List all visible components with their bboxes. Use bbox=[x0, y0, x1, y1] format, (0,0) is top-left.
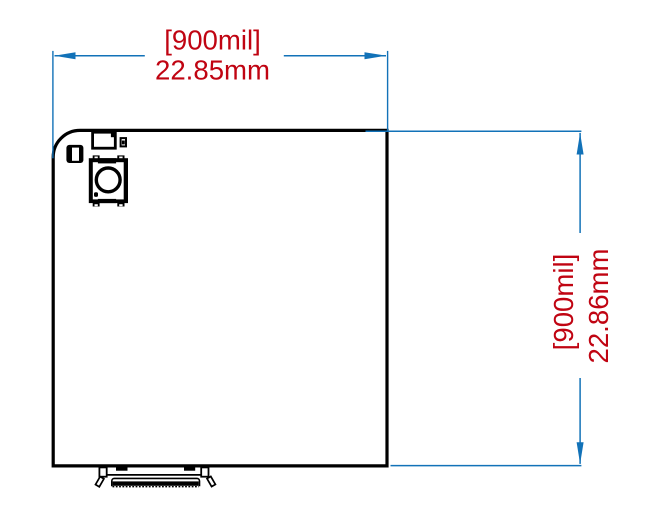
svg-text:22.86mm: 22.86mm bbox=[583, 248, 614, 363]
svg-text:22.85mm: 22.85mm bbox=[155, 55, 270, 86]
svg-text:[900mil]: [900mil] bbox=[548, 254, 579, 351]
svg-text:[900mil]: [900mil] bbox=[164, 24, 261, 55]
